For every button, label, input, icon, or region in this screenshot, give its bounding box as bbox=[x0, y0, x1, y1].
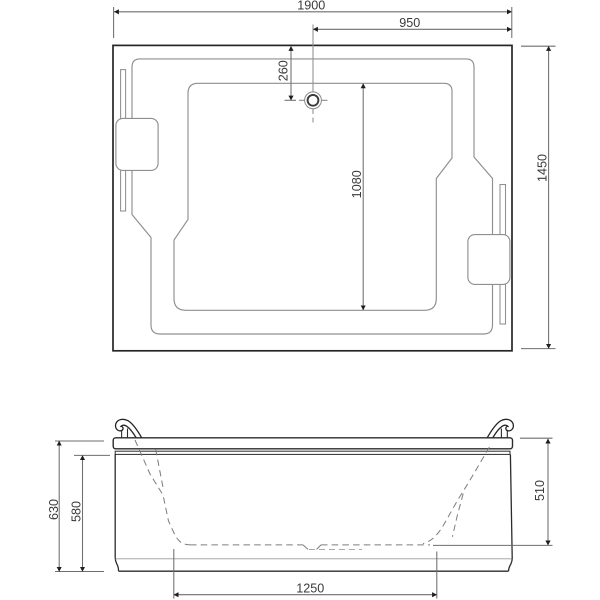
svg-text:1080: 1080 bbox=[350, 170, 364, 198]
svg-text:260: 260 bbox=[277, 60, 291, 81]
svg-text:580: 580 bbox=[70, 501, 84, 522]
svg-text:630: 630 bbox=[47, 499, 61, 520]
svg-text:1450: 1450 bbox=[536, 154, 550, 182]
svg-text:950: 950 bbox=[399, 16, 420, 30]
svg-text:510: 510 bbox=[533, 480, 547, 501]
svg-text:1250: 1250 bbox=[296, 581, 324, 595]
svg-text:1900: 1900 bbox=[297, 0, 325, 13]
